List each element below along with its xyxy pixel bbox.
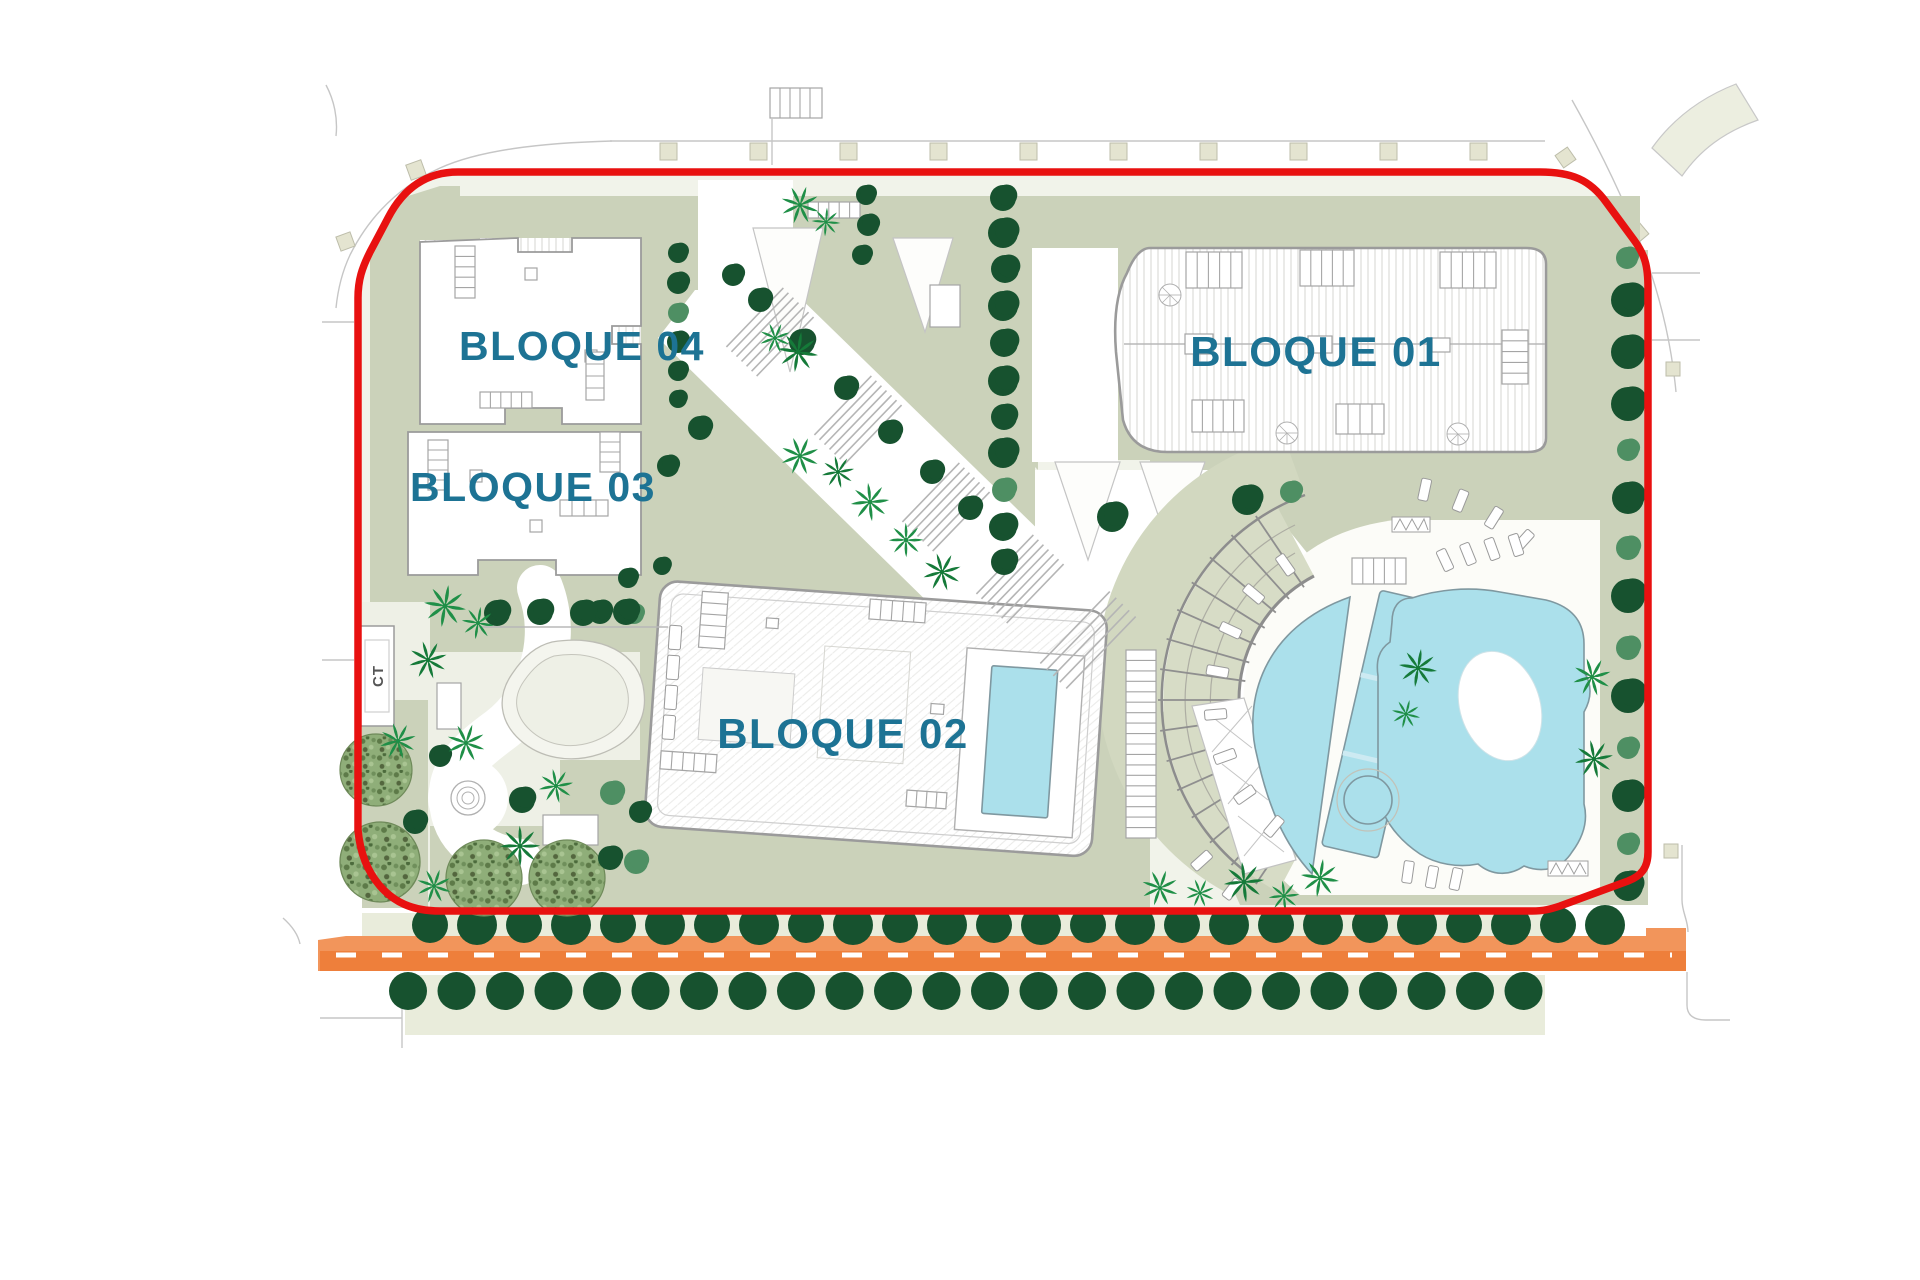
label-bloque-03: BLOQUE 03 [410,464,656,510]
label-bloque-04: BLOQUE 04 [459,323,705,369]
crosswalk-ladder-icon [770,88,822,165]
transformer-ct: CT [360,626,394,726]
swimming-pools [1253,589,1590,874]
transformer-label: CT [370,665,387,687]
site-plan-drawing: CT [0,0,1920,1280]
label-bloque-02: BLOQUE 02 [717,710,969,757]
round-pool [1344,776,1392,824]
south-road [318,905,1686,1035]
label-bloque-01: BLOQUE 01 [1190,328,1442,375]
roundabout [451,781,485,815]
site-interior: CT [340,172,1648,916]
site-plan-page: CT [0,0,1920,1280]
